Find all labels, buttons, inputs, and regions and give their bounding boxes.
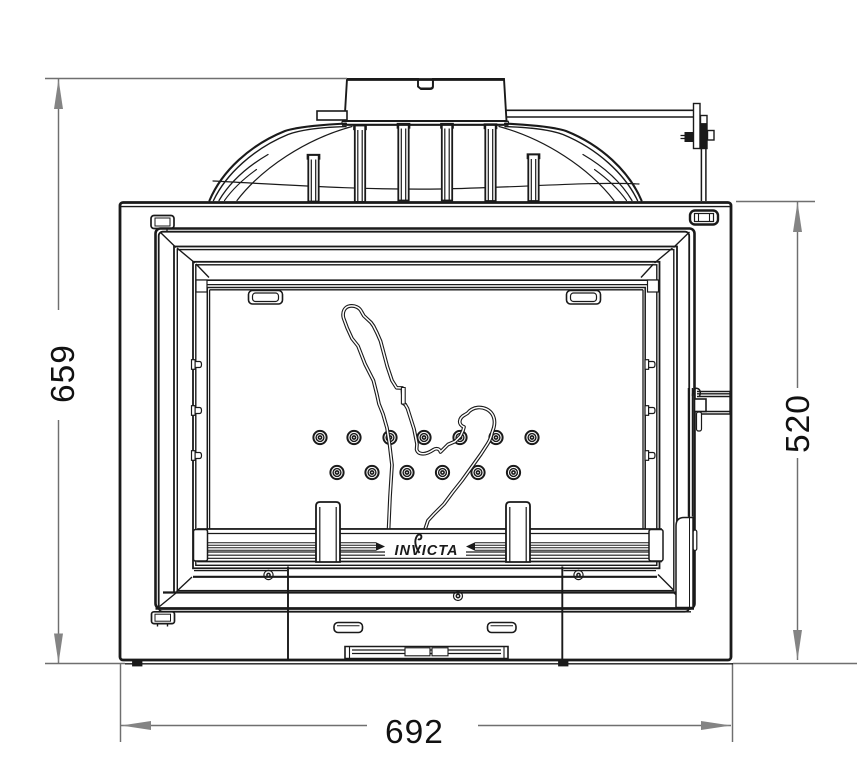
svg-text:INVICTA: INVICTA xyxy=(395,543,459,559)
svg-text:659: 659 xyxy=(45,344,82,403)
svg-text:520: 520 xyxy=(780,394,817,453)
svg-text:692: 692 xyxy=(385,714,444,751)
